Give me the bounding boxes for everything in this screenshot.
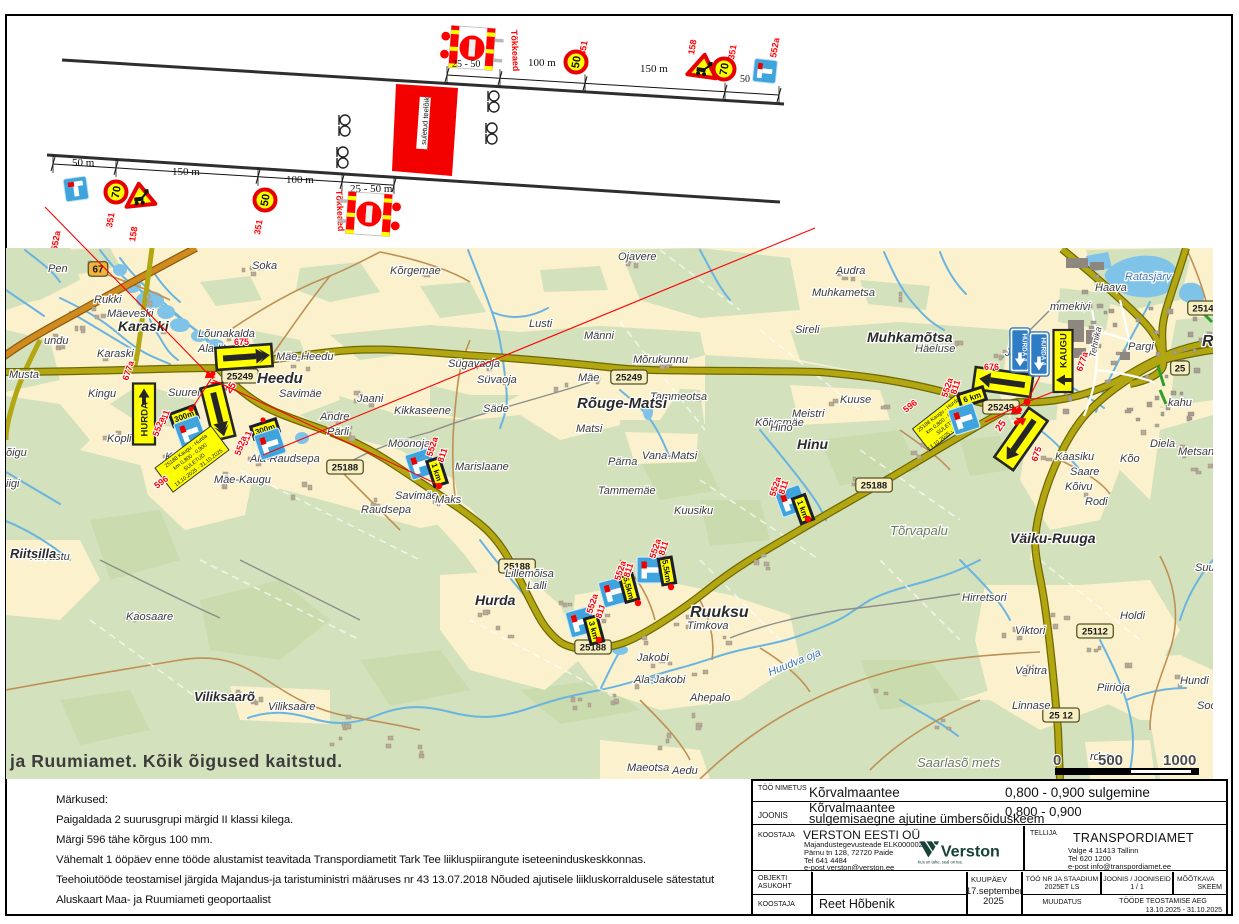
svg-text:Mäe-Kaugu: Mäe-Kaugu <box>214 474 271 486</box>
svg-text:Pen: Pen <box>48 263 68 275</box>
svg-text:Piirioja: Piirioja <box>1097 682 1130 694</box>
svg-text:Musta: Musta <box>9 369 39 381</box>
svg-text:Muhkametsa: Muhkametsa <box>812 287 875 299</box>
svg-text:Matsi: Matsi <box>576 423 603 435</box>
svg-text:Holdi: Holdi <box>1120 610 1146 622</box>
svg-text:Diela: Diela <box>1150 438 1175 450</box>
svg-text:Maeotsa: Maeotsa <box>627 762 669 774</box>
svg-text:mmekivi: mmekivi <box>1050 301 1091 313</box>
svg-text:676: 676 <box>984 362 999 372</box>
svg-text:Karaski: Karaski <box>97 348 134 360</box>
svg-text:Kikkaseene: Kikkaseene <box>394 405 451 417</box>
svg-text:25: 25 <box>1175 363 1186 374</box>
svg-text:Kõo: Kõo <box>1120 453 1140 465</box>
svg-text:HURDA: HURDA <box>139 402 150 436</box>
svg-text:Kuusiku: Kuusiku <box>674 505 713 517</box>
svg-text:500: 500 <box>1098 752 1123 769</box>
svg-text:70: 70 <box>718 62 732 76</box>
svg-text:Kaasiku: Kaasiku <box>1055 451 1094 463</box>
svg-text:70: 70 <box>110 185 124 199</box>
svg-text:Aedu: Aedu <box>671 765 698 777</box>
svg-text:Männi: Männi <box>584 330 615 342</box>
svg-text:Lalli: Lalli <box>527 580 547 592</box>
svg-text:Verston: Verston <box>941 843 1000 861</box>
svg-text:Riitsilla: Riitsilla <box>10 546 56 561</box>
svg-text:Ojavere: Ojavere <box>618 251 657 263</box>
svg-text:25 - 50: 25 - 50 <box>452 59 480 70</box>
svg-text:Tammemäe: Tammemäe <box>598 485 656 497</box>
svg-text:Tõkkeaed: Tõkkeaed <box>334 190 346 232</box>
svg-text:Rõuge-Matsi: Rõuge-Matsi <box>577 395 668 412</box>
svg-text:Vana-Matsi: Vana-Matsi <box>642 450 698 462</box>
svg-text:Raudsepa: Raudsepa <box>361 504 411 516</box>
svg-text:Mäe-Heedu: Mäe-Heedu <box>276 351 333 363</box>
svg-text:Metsan: Metsan <box>1178 446 1213 458</box>
svg-text:Lusti: Lusti <box>529 318 553 330</box>
svg-text:Hirretsori: Hirretsori <box>962 592 1007 604</box>
svg-text:Vahtra: Vahtra <box>1015 665 1047 677</box>
svg-text:undu: undu <box>44 335 68 347</box>
svg-text:Säde: Säde <box>483 403 509 415</box>
svg-text:Mäe: Mäe <box>578 372 599 384</box>
svg-text:50: 50 <box>570 55 584 69</box>
svg-text:25188: 25188 <box>861 480 887 491</box>
svg-text:552a: 552a <box>49 229 62 248</box>
svg-text:Tõrvapalu: Tõrvapalu <box>890 523 948 538</box>
svg-text:õigu: õigu <box>6 447 27 459</box>
svg-text:iigi: iigi <box>6 478 20 490</box>
svg-text:Soka: Soka <box>252 260 277 272</box>
svg-text:Ruuksu: Ruuksu <box>690 604 749 621</box>
svg-text:Karaski: Karaski <box>118 318 170 334</box>
svg-text:Hurda: Hurda <box>475 592 516 608</box>
svg-text:Andre: Andre <box>319 411 349 423</box>
svg-text:351: 351 <box>577 40 589 57</box>
svg-text:Maks: Maks <box>435 494 462 506</box>
svg-text:kahu: kahu <box>1168 397 1192 409</box>
svg-text:Hinu: Hinu <box>797 436 829 452</box>
svg-text:351: 351 <box>726 44 738 61</box>
svg-text:KAUGU: KAUGU <box>1058 333 1069 368</box>
svg-text:Tõkkeaed: Tõkkeaed <box>509 30 521 72</box>
svg-text:Rodi: Rodi <box>1085 496 1108 508</box>
svg-text:25249: 25249 <box>616 372 642 383</box>
svg-text:Sireli: Sireli <box>795 324 820 336</box>
svg-text:2514: 2514 <box>1192 303 1213 314</box>
svg-text:Kõivu: Kõivu <box>1065 481 1093 493</box>
svg-text:Linnase: Linnase <box>1012 700 1051 712</box>
svg-text:Audra: Audra <box>835 265 865 277</box>
svg-text:25249: 25249 <box>227 371 253 382</box>
svg-text:Marislaane: Marislaane <box>455 461 509 473</box>
svg-text:Viktori: Viktori <box>1015 625 1046 637</box>
svg-text:Süvaoja: Süvaoja <box>477 374 517 386</box>
svg-text:50: 50 <box>740 74 750 85</box>
svg-text:158: 158 <box>127 226 139 243</box>
svg-text:Savimäe: Savimäe <box>279 388 322 400</box>
svg-text:150 m: 150 m <box>172 166 200 178</box>
svg-text:25112: 25112 <box>1082 626 1108 637</box>
svg-text:Rukki: Rukki <box>94 294 122 306</box>
svg-text:1000: 1000 <box>1163 752 1196 769</box>
svg-text:Suusa: Suusa <box>1195 562 1213 574</box>
svg-text:Möönoja: Möönoja <box>388 438 430 450</box>
svg-text:Viliksaare: Viliksaare <box>268 701 316 713</box>
svg-text:Saarlasõ mets: Saarlasõ mets <box>917 755 1001 770</box>
svg-text:Mõrukunnu: Mõrukunnu <box>633 354 688 366</box>
svg-text:Soomo: Soomo <box>1197 700 1213 712</box>
svg-text:Kuuse: Kuuse <box>840 394 871 406</box>
svg-text:25249: 25249 <box>988 402 1014 413</box>
svg-text:Kus on tahe, seal on tee.: Kus on tahe, seal on tee. <box>918 860 963 865</box>
svg-text:Pärli: Pärli <box>327 426 350 438</box>
svg-text:Kaosaare: Kaosaare <box>126 611 173 623</box>
svg-text:552a: 552a <box>768 36 781 58</box>
svg-text:ja Ruumiamet. Kõik õigused kai: ja Ruumiamet. Kõik õigused kaitstud. <box>9 751 343 771</box>
svg-text:Heedu: Heedu <box>257 370 303 387</box>
svg-text:Jaani: Jaani <box>356 393 384 405</box>
svg-text:Kõrgemae: Kõrgemae <box>390 265 441 277</box>
svg-text:Pärna: Pärna <box>608 456 637 468</box>
svg-text:25188: 25188 <box>332 462 358 473</box>
svg-text:675: 675 <box>234 337 249 347</box>
svg-text:100 m: 100 m <box>286 174 314 186</box>
svg-text:Saare: Saare <box>1070 466 1099 478</box>
svg-text:Lillemõisa: Lillemõisa <box>505 568 554 580</box>
svg-text:50: 50 <box>259 193 273 207</box>
svg-text:Viliksaarõ: Viliksaarõ <box>194 689 255 704</box>
svg-text:351: 351 <box>252 219 264 236</box>
svg-text:Pargi: Pargi <box>1128 341 1154 353</box>
svg-text:Hundi: Hundi <box>1180 675 1209 687</box>
svg-text:Timkova: Timkova <box>687 620 728 632</box>
svg-text:Ratasjärv: Ratasjärv <box>1125 271 1173 283</box>
svg-text:Savimäe: Savimäe <box>395 490 438 502</box>
svg-text:Haava: Haava <box>1095 282 1127 294</box>
svg-text:67: 67 <box>92 265 104 276</box>
svg-text:Kingu: Kingu <box>88 388 116 400</box>
svg-text:Kopli: Kopli <box>107 433 132 445</box>
svg-text:Ahepalo: Ahepalo <box>689 692 730 704</box>
svg-text:150 m: 150 m <box>640 63 668 75</box>
svg-text:351: 351 <box>104 212 116 229</box>
svg-text:Hino: Hino <box>770 422 793 434</box>
svg-text:Rõ: Rõ <box>1202 333 1213 350</box>
svg-text:Jakobi: Jakobi <box>636 652 669 664</box>
svg-text:158: 158 <box>686 39 698 56</box>
svg-text:Sügavaoja: Sügavaoja <box>448 358 500 370</box>
svg-text:25 12: 25 12 <box>1049 710 1073 721</box>
svg-text:50 m: 50 m <box>72 157 95 169</box>
svg-text:HURDA 4: HURDA 4 <box>1020 334 1027 362</box>
svg-text:0: 0 <box>1053 752 1061 769</box>
svg-text:Ala-Jakobi: Ala-Jakobi <box>633 674 686 686</box>
svg-text:100 m: 100 m <box>528 57 556 69</box>
svg-text:Muhkamõtsa: Muhkamõtsa <box>867 329 953 345</box>
svg-text:Suurel: Suurel <box>168 387 200 399</box>
svg-text:Väiku-Ruuga: Väiku-Ruuga <box>1010 530 1096 546</box>
svg-text:HURDA 4: HURDA 4 <box>1039 338 1046 366</box>
